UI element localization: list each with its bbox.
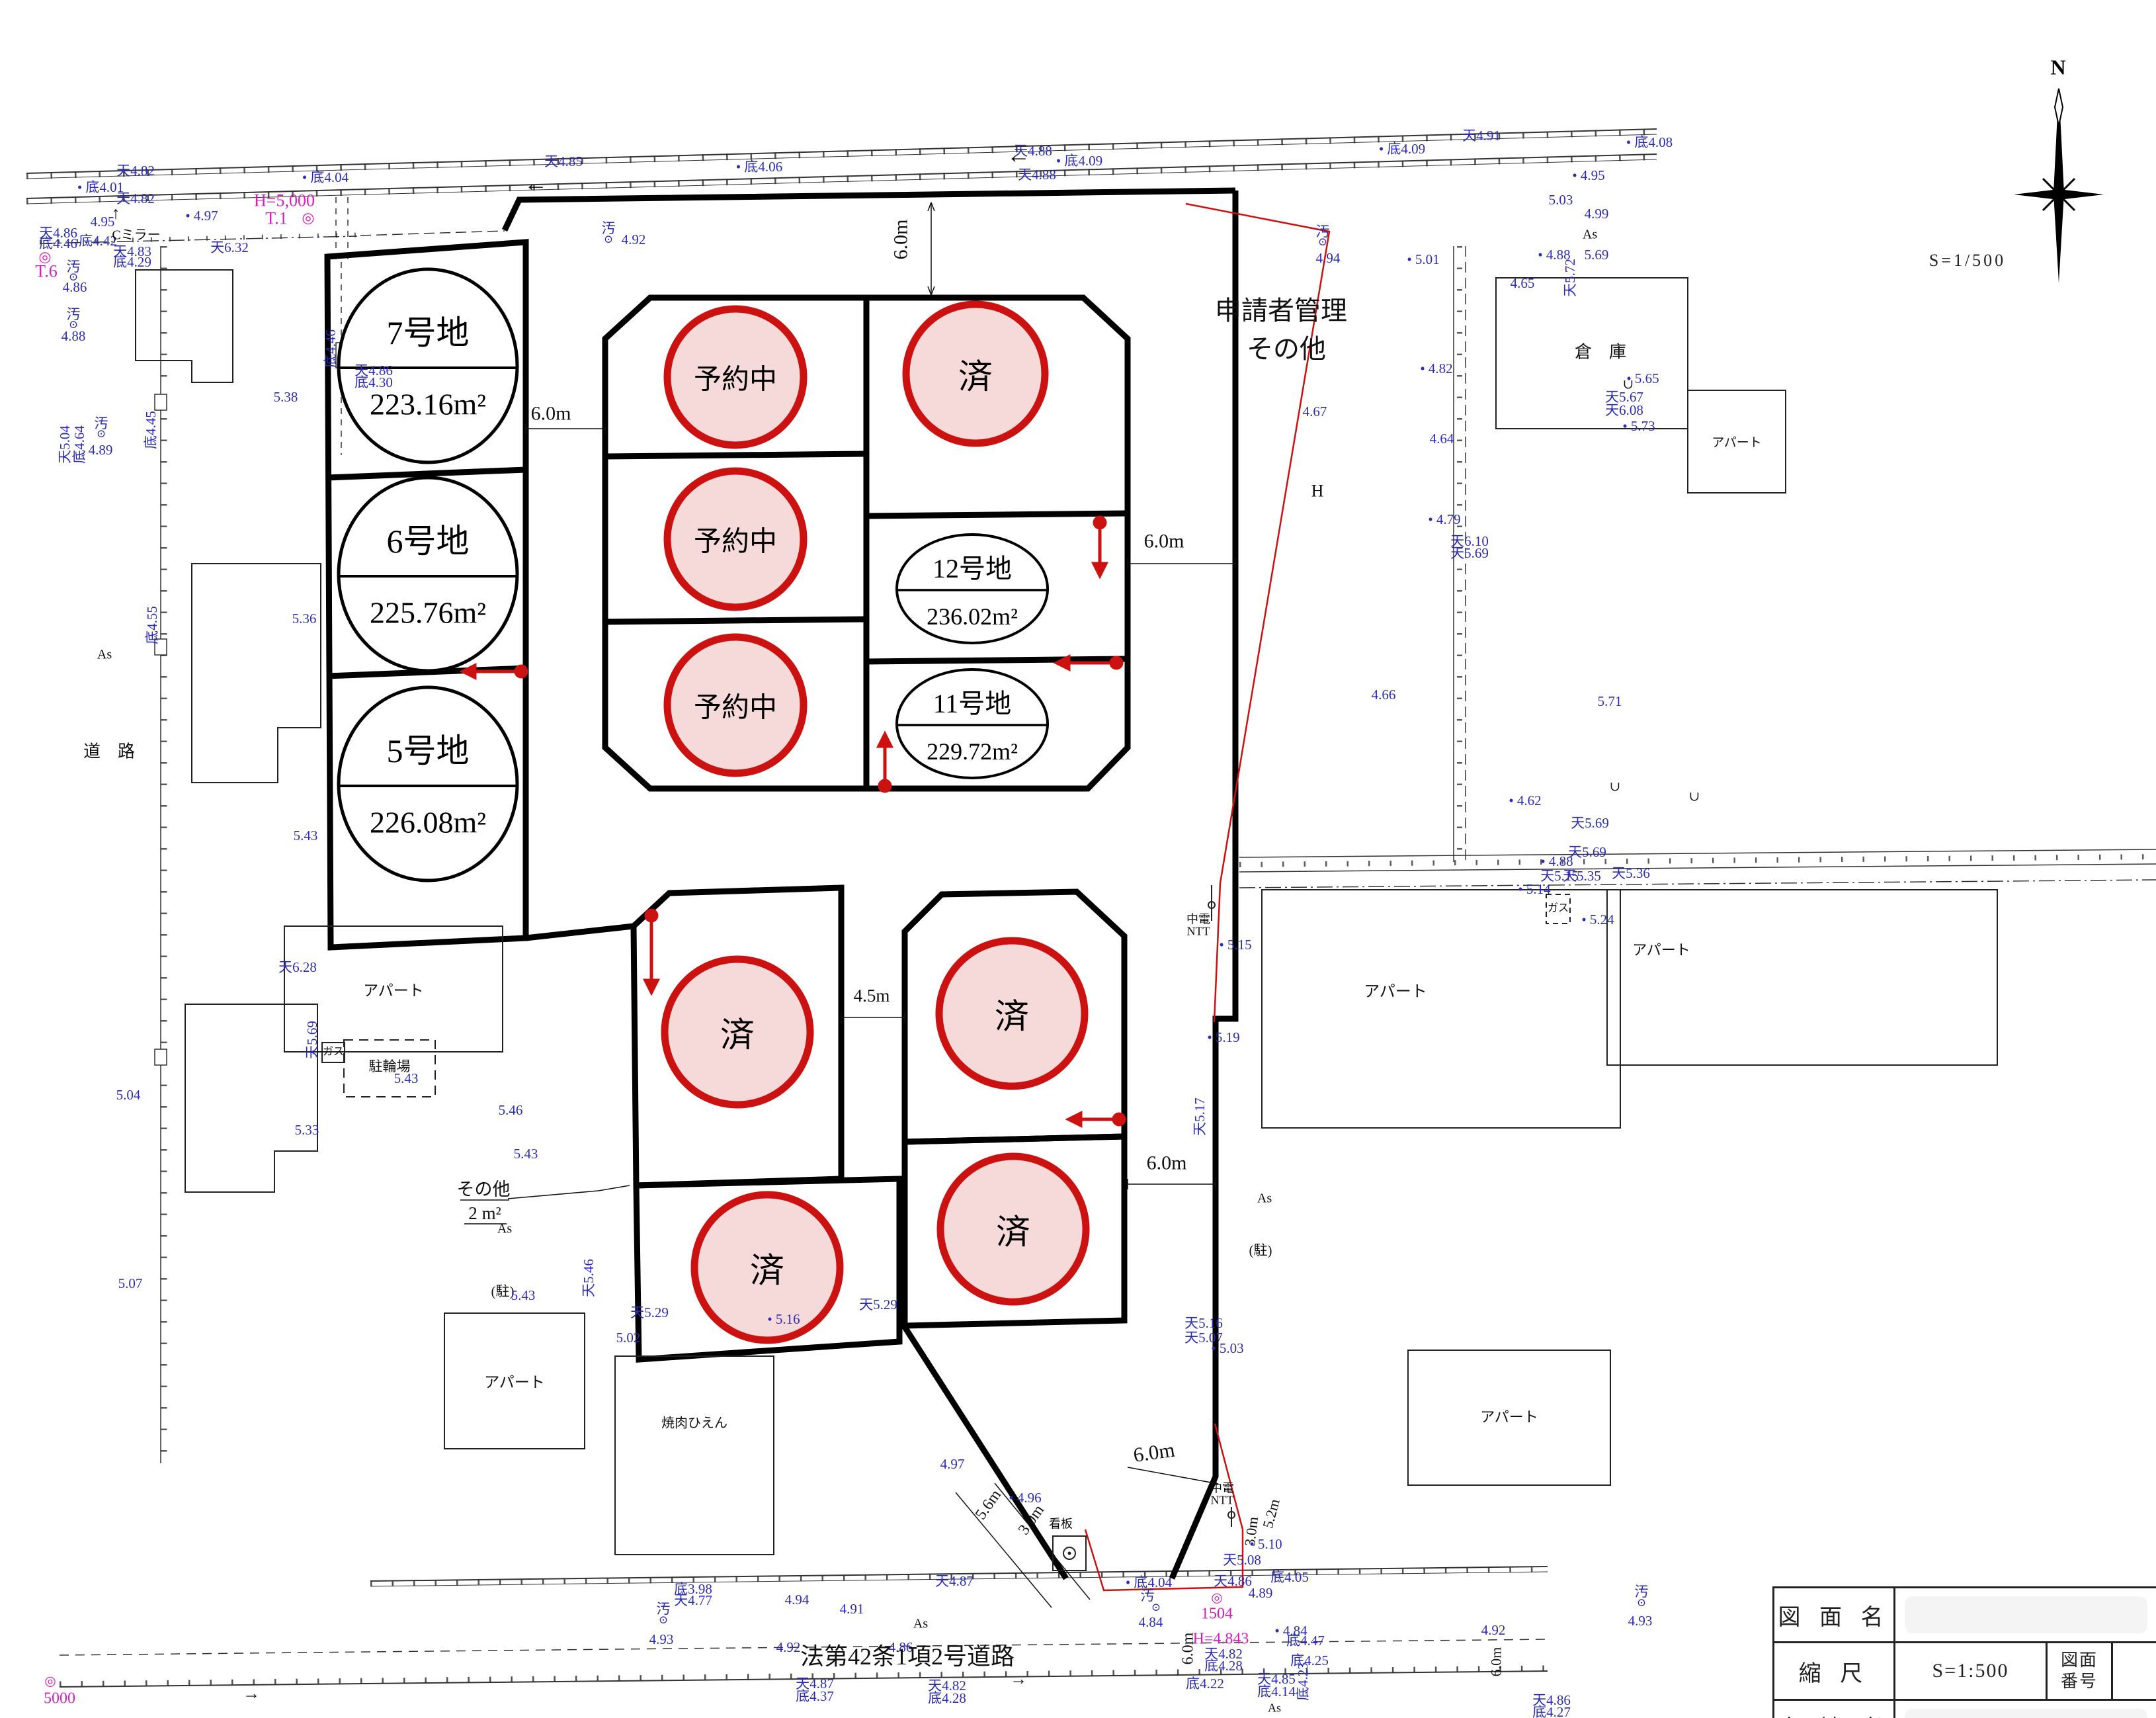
survey-label: 底4.64: [72, 425, 87, 464]
survey-label: 4.92: [1481, 1623, 1506, 1637]
lot-status-label: 予約中: [694, 685, 777, 726]
survey-label: • 5.16: [767, 1312, 800, 1326]
survey-label: 4.91: [840, 1602, 864, 1616]
survey-label: 5.07: [118, 1276, 143, 1291]
survey-label: As: [97, 648, 112, 662]
survey-label: • 4.97: [185, 208, 218, 223]
lot-name: 6号地: [387, 515, 470, 562]
survey-label: 天4.86: [1214, 1574, 1252, 1588]
survey-label: 底4.29: [113, 255, 151, 269]
survey-label: 5.71: [1598, 694, 1622, 709]
survey-label: 天4.91: [1462, 128, 1501, 143]
dim-label: 6.0m: [890, 220, 911, 260]
survey-label: 2 m²: [468, 1204, 501, 1223]
survey-label: 天6.08: [1605, 403, 1643, 417]
survey-label: 5.43: [294, 828, 318, 843]
survey-label: 天5.69: [1571, 816, 1609, 830]
curve-mirror-note: Cミラー: [112, 229, 160, 243]
survey-label: 底4.42: [79, 234, 117, 248]
apartment-label: アパート: [1712, 437, 1762, 450]
survey-label: 天5.69: [1450, 546, 1489, 560]
survey-label: 4.89: [89, 443, 113, 457]
survey-label: 4.94: [785, 1592, 809, 1607]
survey-label: ⊙: [604, 234, 613, 245]
survey-label: • 底4.09: [1379, 142, 1425, 156]
survey-label: 5.43: [511, 1288, 536, 1303]
survey-label: 5.33: [295, 1123, 319, 1137]
survey-label: 4.64: [1430, 431, 1454, 446]
lot-name: 7号地: [387, 306, 470, 354]
lot-area: 236.02m²: [927, 603, 1018, 630]
survey-label: 5.03: [1549, 193, 1573, 207]
survey-drawing-page: { "meta": { "scale_note": "S=1/500", "no…: [0, 0, 2156, 1718]
survey-label: 底4.46: [39, 236, 77, 251]
survey-label: 5.69: [1585, 247, 1609, 262]
warehouse-label: 倉 庫: [1575, 343, 1626, 361]
survey-label: 4.84: [1139, 1615, 1163, 1629]
survey-label: 4.66: [1372, 687, 1396, 702]
survey-label: 天4.87: [935, 1574, 974, 1588]
dim-label: 5.6m: [973, 1487, 1005, 1523]
survey-label: 天5.69: [305, 1021, 319, 1059]
survey-label: As: [1583, 228, 1597, 242]
survey-label: 底4.22: [1186, 1676, 1224, 1691]
survey-label: 4.88: [62, 329, 86, 343]
gas-box-label: ガス: [323, 1047, 344, 1058]
survey-label: As: [1268, 1702, 1281, 1715]
survey-label: 4.92: [622, 232, 646, 247]
lot-area: 223.16m²: [370, 387, 486, 422]
survey-label: • 5.24: [1581, 912, 1614, 927]
survey-label: 天5.35: [1563, 869, 1601, 883]
flow-arrow: →: [1010, 1670, 1027, 1688]
survey-label: 天5.72: [1563, 259, 1577, 297]
survey-label: 5000: [44, 1690, 75, 1707]
dim-label: 4.5m: [854, 986, 890, 1005]
survey-label: NTT: [1211, 1494, 1234, 1507]
survey-label: 底4.47: [1286, 1633, 1325, 1648]
lot-status-label: 済: [750, 1243, 784, 1293]
sheet-number-line1: 図面: [2061, 1650, 2098, 1672]
survey-label: ∪: [1610, 781, 1621, 795]
survey-label: 底4.25: [1290, 1653, 1329, 1668]
survey-label: • 5.15: [1219, 937, 1251, 952]
survey-label: As: [497, 1223, 512, 1236]
survey-label: 5.36: [292, 611, 317, 626]
road-note: 道 路: [83, 742, 135, 760]
survey-label: 4.86: [63, 280, 87, 294]
survey-label: • 4.88: [1540, 854, 1573, 869]
survey-label: 底4.28: [1204, 1658, 1243, 1673]
survey-label: (駐): [1249, 1243, 1272, 1258]
lot-status-label: 済: [995, 989, 1029, 1039]
benchmark-1504: 1504: [1201, 1606, 1233, 1622]
lot-status-label: 済: [996, 1205, 1030, 1254]
survey-label: ⊙: [1318, 236, 1327, 248]
lot-area: 229.72m²: [927, 738, 1018, 765]
sheet-number-line2: 番号: [2061, 1671, 2098, 1693]
title-block-drawing-name-value: [1895, 1588, 2156, 1641]
dim-label: 5.2m: [1260, 1497, 1282, 1529]
survey-label: • 4.95: [1572, 168, 1604, 183]
survey-label: • 4.96: [1009, 1490, 1041, 1505]
lot-status-label: 予約中: [694, 519, 777, 560]
survey-label: 5.02: [616, 1330, 641, 1345]
survey-label: 天5.36: [1612, 866, 1650, 880]
title-block-scale-value: S=1:500: [1895, 1643, 2048, 1699]
survey-label: 天4.82: [116, 191, 155, 206]
survey-label: 天5.04: [58, 425, 72, 464]
title-block: 図 面 名 縮 尺 S=1:500 図面 番号 申 請 者: [1772, 1586, 2156, 1718]
survey-label: ◎: [44, 1675, 56, 1689]
survey-label: 天5.08: [1223, 1553, 1261, 1567]
applicant-managed-note: その他: [1247, 335, 1326, 363]
survey-label: 5.38: [274, 390, 298, 404]
survey-label: As: [913, 1617, 928, 1631]
benchmark-h5000: H=5,000: [254, 191, 315, 209]
survey-label: ⊙: [659, 1614, 668, 1626]
restaurant-label: 焼肉ひえん: [661, 1417, 727, 1431]
survey-label: T.1: [265, 209, 287, 227]
flow-arrow: ←: [524, 171, 548, 196]
survey-label: • 底4.04: [1126, 1575, 1172, 1590]
apartment-label: アパート: [363, 983, 424, 999]
survey-label: 天5.29: [859, 1297, 897, 1312]
title-block-drawing-name-label: 図 面 名: [1774, 1588, 1895, 1641]
title-block-scale-label: 縮 尺: [1774, 1643, 1895, 1699]
lot-area: 226.08m²: [370, 805, 486, 840]
survey-label: 天5.46: [581, 1259, 596, 1297]
lot-status-label: 予約中: [694, 357, 777, 398]
redacted-text: [1905, 1596, 2147, 1633]
survey-label: 底4.46: [323, 329, 338, 368]
north-label: N: [2050, 56, 2065, 80]
survey-label: 底4.55: [145, 606, 159, 644]
survey-label: • 4.62: [1509, 793, 1541, 808]
survey-label: • 底4.04: [302, 170, 349, 185]
survey-label: • 5.73: [1622, 419, 1655, 433]
dim-label: 6.0m: [1488, 1647, 1503, 1677]
survey-label: 天5.69: [1568, 845, 1606, 859]
survey-label: 5.43: [394, 1071, 419, 1086]
lot-name: 11号地: [933, 682, 1012, 720]
dim-label: 6.0m: [1180, 1633, 1196, 1665]
survey-label: 4.92: [776, 1640, 801, 1654]
lot-name: 5号地: [387, 724, 470, 772]
dim-label: 6.0m: [531, 403, 571, 424]
survey-label: ⊙: [1637, 1597, 1646, 1609]
lot-area: 225.76m²: [370, 595, 486, 630]
sonota-note: その他: [457, 1180, 511, 1199]
scale-note: S=1/500: [1929, 251, 2006, 271]
flow-arrow: ↑: [112, 204, 120, 222]
survey-label: 底4.37: [796, 1689, 834, 1703]
survey-label: • 5.14: [1518, 882, 1550, 896]
survey-label: ⊙: [97, 428, 106, 440]
title-block-sheet-number-value: [2113, 1643, 2156, 1699]
flow-arrow: ←: [1007, 143, 1030, 168]
survey-label: 4.97: [940, 1457, 965, 1471]
survey-label: 5.46: [499, 1103, 523, 1117]
survey-label: • 5.19: [1207, 1030, 1239, 1045]
dim-label: 6.0m: [1132, 1439, 1177, 1467]
redacted-text: [1905, 1709, 2147, 1718]
survey-label: 天4.77: [674, 1593, 712, 1608]
road-act-note: 法第42条1項2号道路: [800, 1645, 1015, 1670]
survey-label: 4.99: [1585, 206, 1609, 221]
title-block-applicant-label: 申 請 者: [1774, 1701, 1895, 1718]
survey-label: 天4.82: [116, 163, 155, 178]
survey-label: • 4.79: [1428, 512, 1460, 527]
survey-label: 5.43: [514, 1146, 538, 1161]
title-block-applicant-value: [1895, 1701, 2156, 1718]
survey-label: ◎: [302, 210, 314, 225]
survey-label: 5.04: [116, 1088, 141, 1102]
survey-label: 底4.28: [928, 1691, 966, 1705]
survey-label: 4.93: [1628, 1613, 1653, 1628]
survey-label: As: [1257, 1192, 1272, 1206]
survey-label: 4.94: [1316, 251, 1341, 265]
survey-label: • 5.10: [1249, 1537, 1282, 1551]
survey-label: ◎: [1211, 1592, 1222, 1606]
survey-label: 4.65: [1511, 276, 1535, 290]
survey-label: 天6.32: [210, 240, 249, 255]
signboard-label: 看板: [1049, 1518, 1073, 1531]
survey-label: 天5.17: [1192, 1097, 1207, 1136]
apartment-label: アパート: [1480, 1409, 1538, 1424]
survey-label: 底4.05: [1270, 1570, 1309, 1584]
survey-label: NTT: [1187, 925, 1210, 938]
survey-label: • 底4.08: [1626, 135, 1673, 150]
survey-label: 4.89: [1249, 1586, 1273, 1600]
dim-label: 6.0m: [1144, 531, 1184, 552]
survey-label: 天6.28: [278, 960, 317, 974]
survey-label: 天5.29: [630, 1305, 669, 1320]
map-labels-layer: 天4.82• 底4.01天4.82• 底4.044.95• 4.97H=5,00…: [0, 0, 2156, 1718]
apartment-label: アパート: [484, 1375, 545, 1391]
survey-label: H: [1311, 482, 1324, 499]
survey-label: 天4.85: [544, 154, 583, 169]
survey-label: 底4.27: [1532, 1705, 1571, 1718]
survey-label: • 4.82: [1420, 361, 1452, 376]
survey-label: 天4.88: [1018, 167, 1056, 182]
survey-label: H=4.843: [1193, 1631, 1249, 1647]
applicant-managed-note: 申請者管理: [1215, 297, 1347, 325]
survey-label: • 底4.09: [1056, 153, 1102, 168]
lot-status-label: 済: [720, 1008, 755, 1057]
survey-label: 4.93: [649, 1632, 674, 1647]
survey-label: 底4.14: [1257, 1684, 1296, 1699]
survey-label: ∪: [1689, 791, 1700, 804]
survey-label: • 5.01: [1407, 252, 1439, 267]
apartment-label: アパート: [1632, 942, 1690, 957]
survey-label: • 5.03: [1211, 1341, 1243, 1355]
gas-box-label: ガス: [1548, 904, 1569, 915]
survey-label: 底4.45: [144, 411, 158, 449]
dim-label: 6.0m: [1147, 1152, 1187, 1174]
dim-label: 3.0m: [1016, 1502, 1048, 1538]
title-block-sheet-number-label: 図面 番号: [2048, 1643, 2113, 1699]
survey-label: • 底4.06: [736, 159, 782, 174]
lot-name: 12号地: [933, 547, 1012, 585]
flow-arrow: →: [243, 1684, 260, 1702]
survey-label: 4.67: [1303, 404, 1327, 419]
apartment-label: アパート: [1364, 984, 1427, 1000]
survey-label: 天5.16: [1184, 1316, 1223, 1330]
lot-status-label: 済: [958, 349, 993, 399]
survey-label: ⊙: [1151, 1602, 1161, 1613]
